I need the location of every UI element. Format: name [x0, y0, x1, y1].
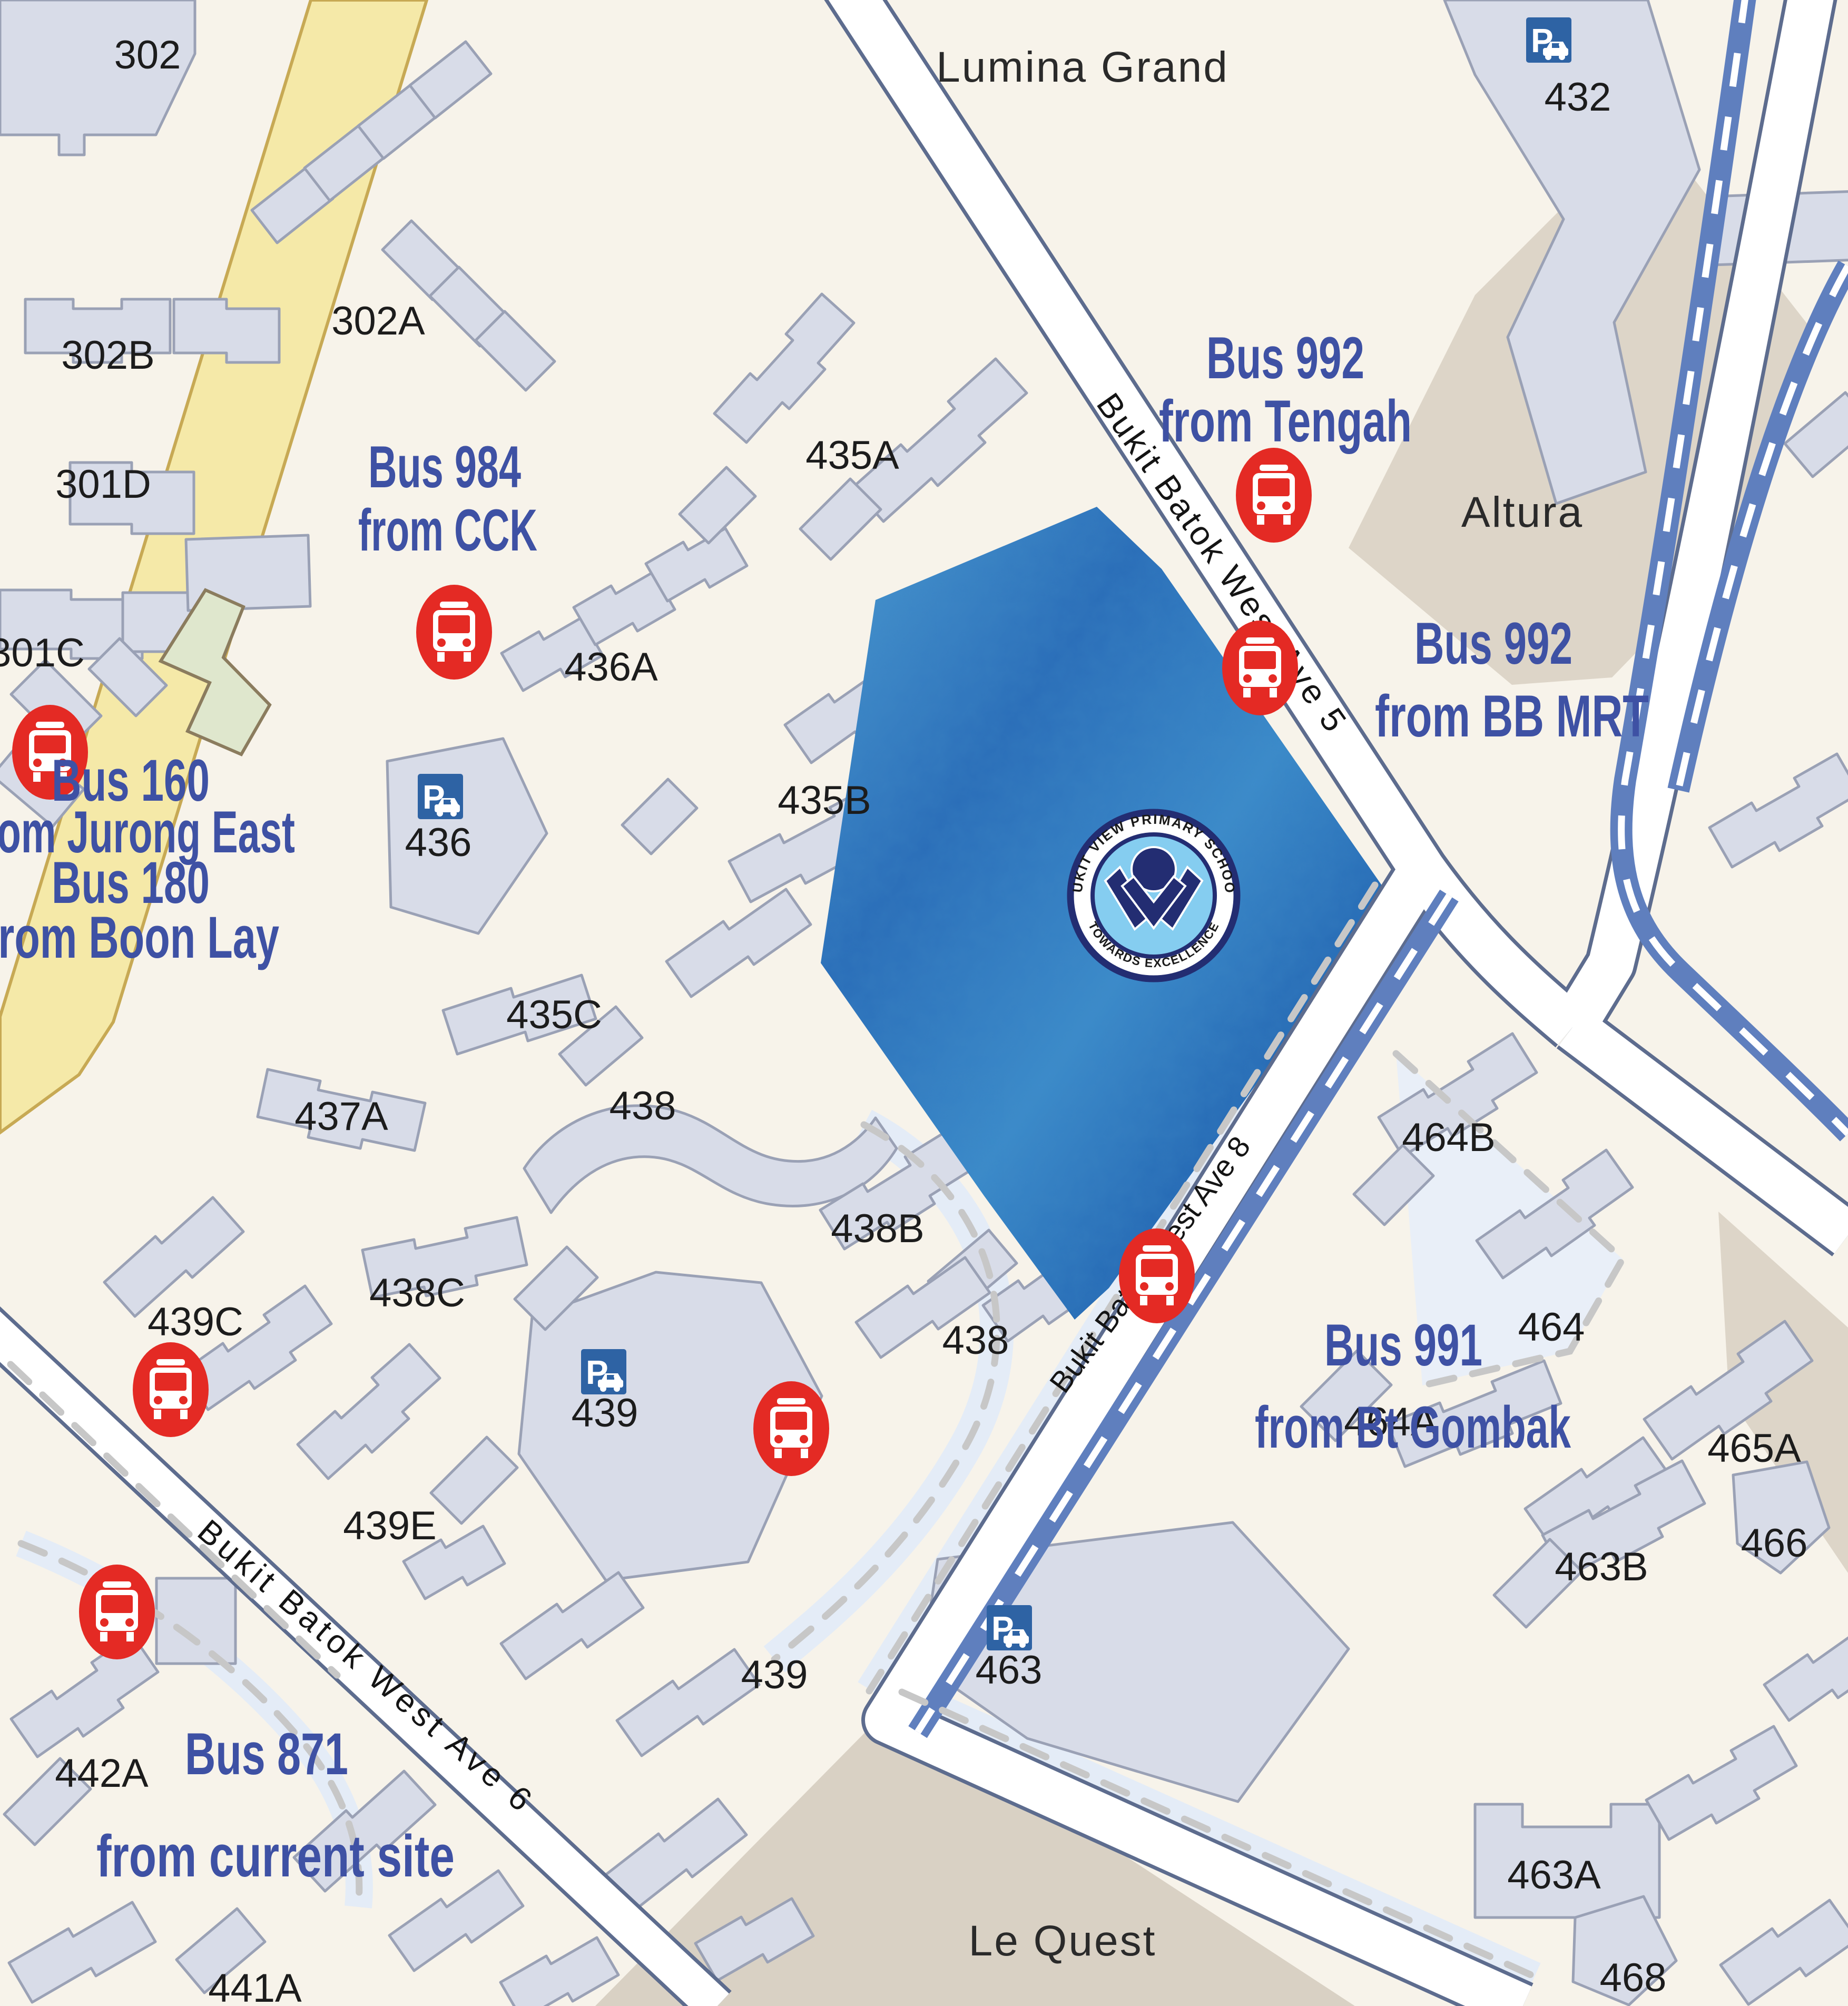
- bus-stop-icon: [753, 1381, 829, 1476]
- block-label: 463A: [1507, 1853, 1601, 1897]
- parking-icon: [581, 1349, 626, 1394]
- block-label: 441A: [208, 1966, 302, 2006]
- block-label: 442A: [55, 1751, 149, 1796]
- block-label: 439C: [148, 1300, 243, 1344]
- block-label: 302: [114, 33, 181, 77]
- block-label: 465A: [1707, 1426, 1801, 1471]
- bus-annotation: Bus 991: [1324, 1312, 1482, 1378]
- bus-annotation: from CCK: [358, 497, 537, 563]
- map-screenshot: P: [0, 0, 1848, 2006]
- bus-annotation: from Bt Gombak: [1255, 1394, 1571, 1460]
- bus-stop-icon: [1236, 448, 1312, 543]
- bus-stop-icon: [416, 585, 492, 680]
- block-label: 437A: [294, 1094, 388, 1139]
- bus-annotation: from Boon Lay: [0, 904, 279, 970]
- block-label: 464B: [1402, 1115, 1496, 1160]
- building: [174, 299, 279, 362]
- block-label: 436A: [564, 645, 658, 690]
- bus-stop-icon: [79, 1565, 155, 1659]
- block-label: 466: [1741, 1521, 1808, 1566]
- block-label: 301D: [55, 462, 151, 507]
- bus-stop-icon: [133, 1342, 209, 1437]
- bus-stop-icon: [1119, 1228, 1195, 1323]
- block-label: 468: [1600, 1955, 1667, 2000]
- block-label: 463B: [1555, 1545, 1648, 1589]
- block-label: 438: [942, 1318, 1009, 1363]
- block-label: 435B: [778, 778, 871, 823]
- bus-stop-icon: [1222, 621, 1298, 715]
- block-label: 302B: [61, 333, 155, 378]
- parking-icon: [418, 774, 463, 819]
- block-label: 439: [741, 1653, 808, 1697]
- place-label: Lumina Grand: [936, 43, 1229, 91]
- bus-annotation: Bus 992: [1414, 611, 1572, 676]
- bus-annotation: from current site: [96, 1823, 455, 1889]
- block-label: 438B: [831, 1206, 925, 1251]
- block-label: 463: [976, 1648, 1043, 1693]
- block-label: 302A: [331, 299, 425, 343]
- parking-icon: [987, 1605, 1032, 1650]
- block-label: 432: [1545, 75, 1611, 120]
- place-label: Altura: [1461, 488, 1584, 536]
- block-label: 301C: [0, 631, 85, 675]
- building: [156, 1578, 235, 1664]
- place-label: Le Quest: [969, 1917, 1157, 1965]
- block-label: 435C: [506, 992, 602, 1037]
- bus-annotation: Bus 871: [185, 1721, 348, 1787]
- block-label: 464: [1518, 1305, 1585, 1350]
- block-label: 436: [405, 820, 472, 865]
- parking-icon: [1526, 17, 1571, 63]
- block-label: 438C: [369, 1271, 465, 1315]
- bus-annotation: Bus 992: [1206, 325, 1364, 391]
- block-label: 435A: [805, 433, 899, 478]
- block-label: 438: [610, 1084, 676, 1128]
- bus-annotation: from Tengah: [1159, 388, 1412, 454]
- bus-annotation: Bus 984: [368, 434, 521, 500]
- bus-annotation: from BB MRT: [1375, 683, 1649, 749]
- block-label: 439: [572, 1391, 638, 1435]
- block-label: 439E: [343, 1503, 437, 1548]
